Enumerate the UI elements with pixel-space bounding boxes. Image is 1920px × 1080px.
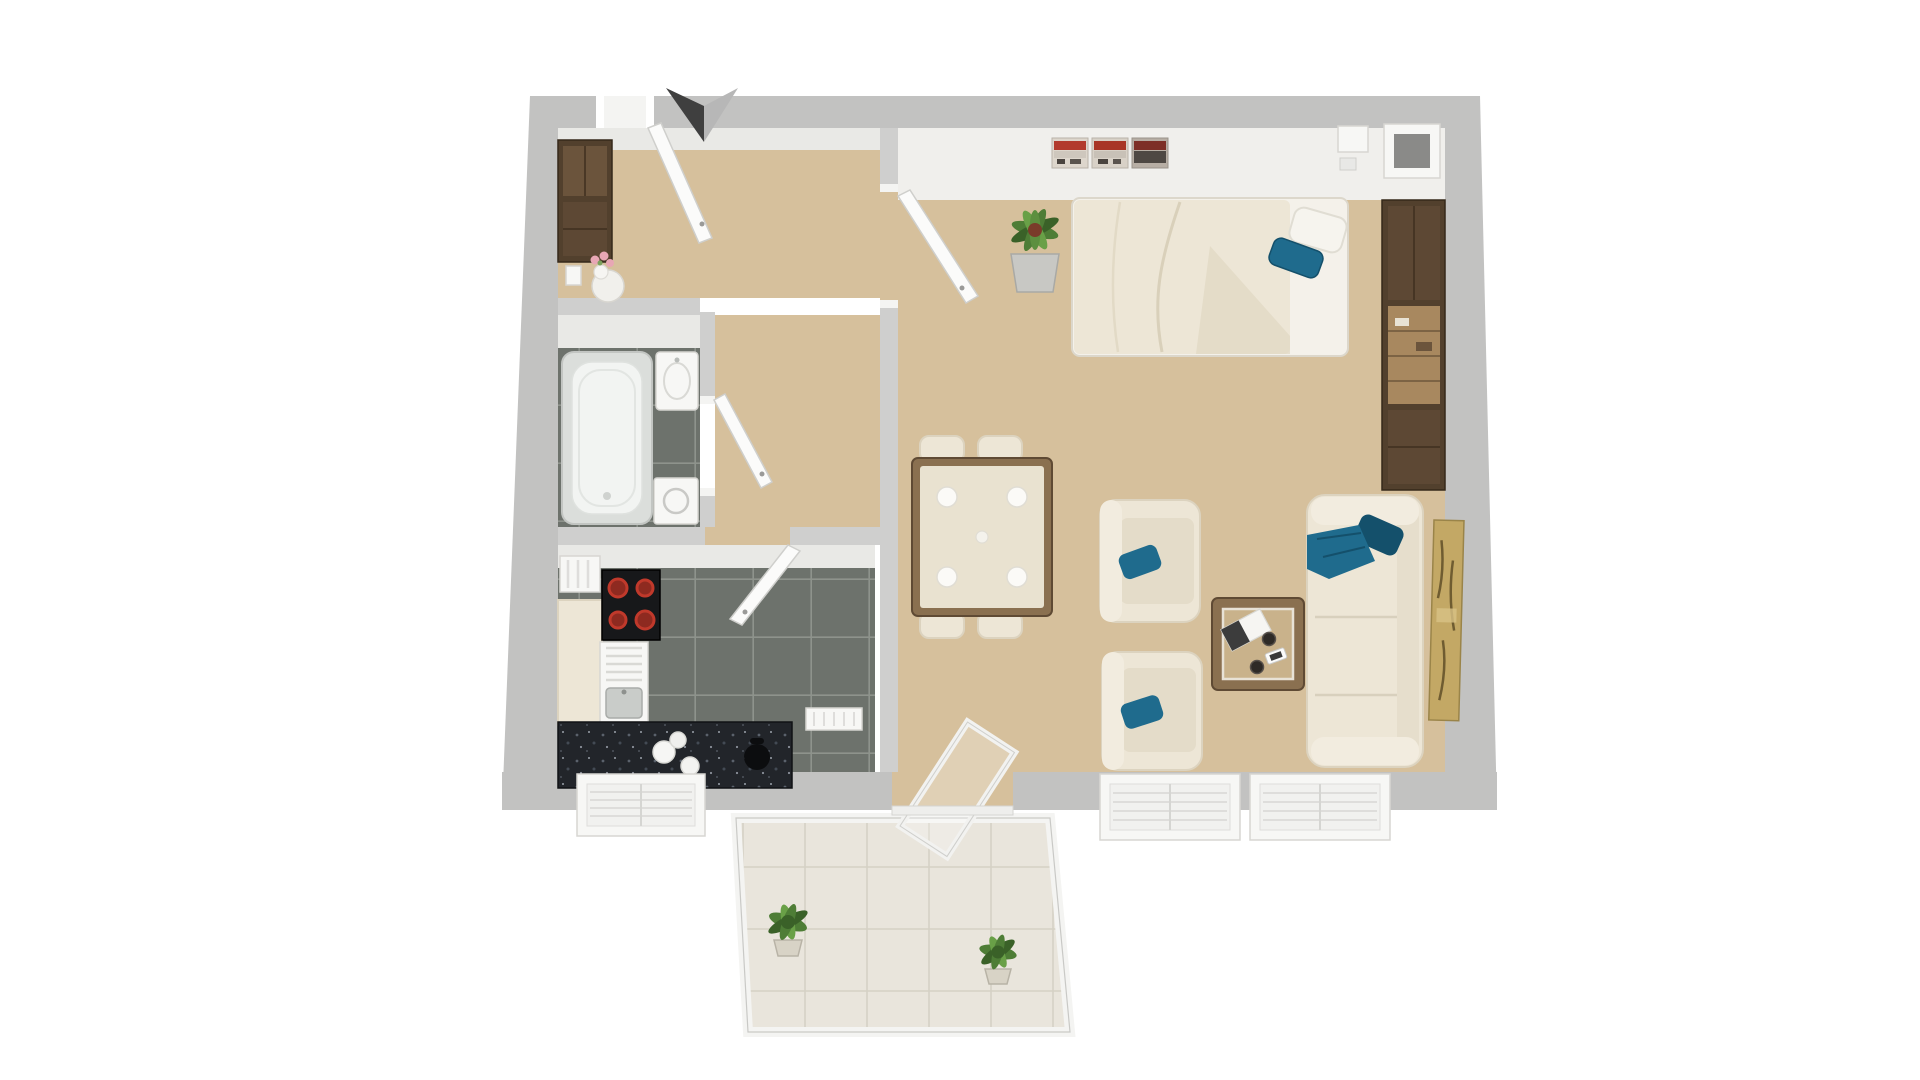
table-bowl (976, 531, 988, 543)
washing-machine (654, 478, 698, 524)
wall-boxes (1338, 124, 1440, 178)
hall-living-wall-upper (880, 128, 898, 192)
wall-thermostat (566, 266, 581, 285)
front-door-opening (600, 96, 650, 128)
corridor-kitchen-wall (790, 527, 880, 545)
hall-bathroom-wall (558, 298, 700, 315)
table-plate (937, 567, 957, 587)
living-window-2 (1250, 774, 1390, 840)
kitchen-door-gap (705, 527, 790, 545)
leaning-gold-artwork (1429, 520, 1464, 721)
living-door-gap (880, 192, 898, 300)
bathroom-wall-face (558, 315, 700, 348)
floor-plan-canvas (0, 0, 1920, 1080)
armchair-1 (1100, 500, 1200, 622)
armchair-2 (1102, 652, 1202, 770)
wardrobe-shelving-unit (1382, 200, 1445, 490)
plate (670, 732, 686, 748)
tall-cream-cabinet (558, 600, 602, 725)
sofa (1307, 495, 1423, 767)
tub-drain (603, 492, 611, 500)
vase (594, 265, 608, 279)
plate (681, 757, 699, 775)
faucet (622, 690, 627, 695)
front-door-handle (700, 222, 705, 227)
bathroom-right-wall-lower (700, 492, 715, 527)
sofa-armrest-bottom (1311, 737, 1419, 765)
coffee-table (1212, 598, 1304, 690)
bathroom-door-handle (760, 472, 765, 477)
door-threshold (892, 806, 1013, 815)
front-door-jamb-left (596, 96, 604, 128)
kitchen-wall-face (558, 545, 875, 568)
plant-pot (1011, 254, 1059, 292)
table-plate (1007, 567, 1027, 587)
front-door-jamb-right (646, 96, 654, 128)
living-window-1 (1100, 774, 1240, 840)
kitchen-door-handle (743, 610, 748, 615)
bathroom-kitchen-wall (558, 527, 705, 545)
cup (1263, 633, 1276, 646)
balcony (736, 818, 1070, 1032)
cup (1251, 661, 1264, 674)
top-wall (530, 96, 1478, 128)
small-radiator (806, 708, 862, 730)
washbasin (656, 352, 698, 410)
hall-living-wall-lower (880, 300, 898, 772)
sofa-backrest (1397, 509, 1419, 753)
double-bed (1072, 198, 1349, 356)
table-plate (1007, 487, 1027, 507)
bathtub (562, 352, 652, 524)
kitchen-radiator (560, 556, 600, 592)
sink-with-drainer (600, 642, 648, 722)
living-door-handle (960, 286, 965, 291)
entry-wardrobe (558, 140, 612, 262)
wall-triptych-art (1052, 138, 1168, 168)
bathroom-right-wall-upper (700, 312, 715, 402)
kitchen-window (577, 774, 705, 836)
cooktop-four-red-burners (602, 570, 660, 640)
left-wall (502, 96, 558, 810)
dining-set (912, 436, 1052, 638)
table-plate (937, 487, 957, 507)
